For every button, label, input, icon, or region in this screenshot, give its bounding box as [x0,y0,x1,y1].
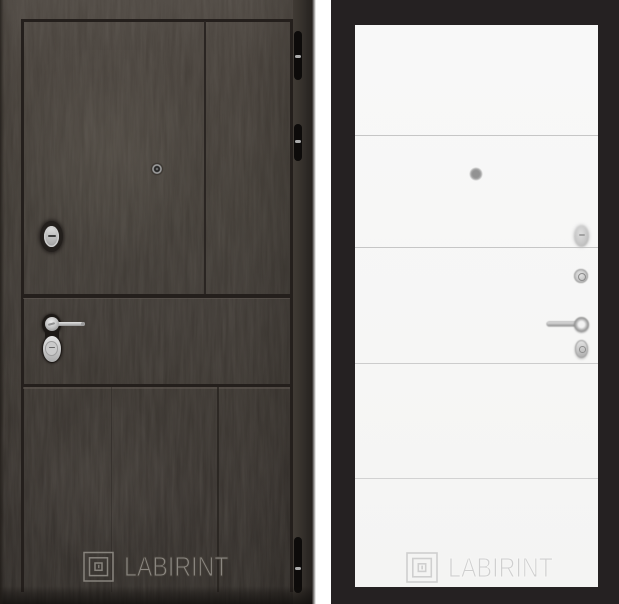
svg-text:LABIRINT: LABIRINT [124,551,229,582]
svg-text:LABIRINT: LABIRINT [448,552,553,583]
